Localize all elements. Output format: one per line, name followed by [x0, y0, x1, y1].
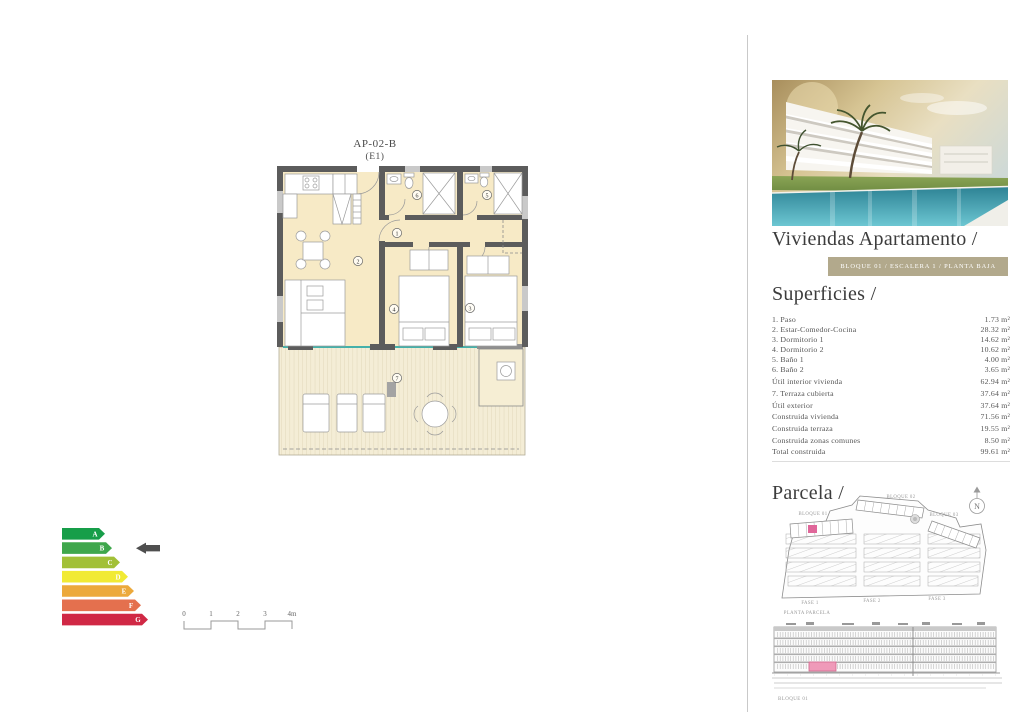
- row-value: 3.65 m²: [985, 365, 1010, 375]
- row-value: 37.64 m²: [981, 401, 1011, 411]
- svg-text:2: 2: [236, 610, 240, 618]
- energy-rating-chart: A B C D E F G: [62, 528, 166, 630]
- svg-text:A: A: [92, 530, 97, 538]
- unit-marker: [808, 525, 817, 533]
- superficies-row: 3. Dormitorio 114.62 m²: [772, 335, 1010, 345]
- superficies-row: Útil interior vivienda62.94 m²: [772, 377, 1010, 387]
- site-label-bloque02: BLOQUE 02: [886, 495, 915, 500]
- svg-text:F: F: [129, 602, 133, 610]
- row-label: 7. Terraza cubierta: [772, 389, 834, 399]
- plan-title: AP-02-B: [300, 138, 450, 152]
- row-value: 19.55 m²: [981, 424, 1011, 434]
- parcela-heading: Parcela /: [772, 482, 844, 505]
- row-label: 2. Estar-Comedor-Cocina: [772, 325, 856, 335]
- row-value: 71.56 m²: [981, 412, 1011, 422]
- plan-title-block: AP-02-B (E1): [300, 138, 450, 164]
- svg-text:G: G: [135, 616, 141, 624]
- superficies-row: 1. Paso1.73 m²: [772, 315, 1010, 325]
- svg-text:3: 3: [263, 610, 267, 618]
- superficies-row: 7. Terraza cubierta37.64 m²: [772, 389, 1010, 399]
- brochure-page: AP-02-B (E1): [0, 0, 1024, 724]
- row-label: 6. Baño 2: [772, 365, 804, 375]
- svg-text:B: B: [100, 545, 105, 553]
- rating-arrow-a: [62, 528, 105, 540]
- superficies-row: 6. Baño 23.65 m²: [772, 365, 1010, 375]
- room-label-7: 7: [396, 376, 399, 382]
- row-label: 5. Baño 1: [772, 355, 804, 365]
- superficies-row: Útil exterior37.64 m²: [772, 401, 1010, 411]
- svg-text:0: 0: [182, 610, 186, 618]
- room-label-3: 3: [469, 306, 472, 312]
- svg-text:E: E: [122, 588, 127, 596]
- superficies-row: 2. Estar-Comedor-Cocina28.32 m²: [772, 325, 1010, 335]
- panel-divider: [747, 35, 748, 712]
- site-label-fase3: FASE 3: [928, 597, 946, 602]
- row-value: 99.61 m²: [981, 447, 1011, 457]
- location-badge: BLOQUE 01 / ESCALERA 1 / PLANTA BAJA: [828, 257, 1008, 276]
- row-label: Útil interior vivienda: [772, 377, 842, 387]
- elevation-unit-highlight: [809, 662, 836, 671]
- planter: [387, 382, 396, 397]
- row-value: 62.94 m²: [981, 377, 1011, 387]
- base-lines: [772, 673, 1002, 688]
- scale-bar-line: [184, 621, 292, 629]
- row-label: Construida terraza: [772, 424, 833, 434]
- row-label: 3. Dormitorio 1: [772, 335, 824, 345]
- row-label: Total construida: [772, 447, 826, 457]
- rating-arrow-b: [62, 542, 112, 554]
- superficies-row: 4. Dormitorio 210.62 m²: [772, 345, 1010, 355]
- svg-text:D: D: [115, 573, 120, 581]
- svg-text:N: N: [974, 502, 980, 511]
- superficies-row: Construida terraza19.55 m²: [772, 424, 1010, 434]
- svg-text:4m: 4m: [288, 610, 298, 618]
- scale-bar: 0 1 2 3 4m: [180, 608, 298, 636]
- row-label: 1. Paso: [772, 315, 796, 325]
- row-value: 14.62 m²: [981, 335, 1011, 345]
- row-value: 10.62 m²: [981, 345, 1011, 355]
- site-label-planta-parcela: PLANTA PARCELA: [784, 611, 831, 616]
- svg-text:C: C: [107, 559, 112, 567]
- floor-plan: 1 2 3 4 5 6 7: [277, 166, 528, 458]
- room-label-6: 6: [416, 193, 419, 199]
- row-label: Construida vivienda: [772, 412, 839, 422]
- plan-subtitle: (E1): [300, 152, 450, 164]
- building-photo: [772, 80, 1008, 226]
- superficies-row: Total construida99.61 m²: [772, 447, 1010, 457]
- row-value: 1.73 m²: [985, 315, 1010, 325]
- row-label: Construida zonas comunes: [772, 436, 860, 446]
- roof-band: [774, 627, 996, 631]
- site-label-fase2: FASE 2: [863, 599, 881, 604]
- room-label-5: 5: [486, 193, 489, 199]
- site-label-bloque01: BLOQUE 01: [798, 512, 827, 517]
- row-label: 4. Dormitorio 2: [772, 345, 824, 355]
- elevation-label: BLOQUE 01: [778, 697, 808, 702]
- room-label-2: 2: [357, 259, 360, 265]
- rating-arrows: [62, 528, 148, 625]
- row-value: 37.64 m²: [981, 389, 1011, 399]
- row-label: Útil exterior: [772, 401, 813, 411]
- site-plan: N: [772, 486, 1008, 616]
- elevation-drawing: BLOQUE 01: [772, 620, 1008, 720]
- superficies-heading: Superficies /: [772, 283, 876, 306]
- row-value: 4.00 m²: [985, 355, 1010, 365]
- row-value: 28.32 m²: [981, 325, 1011, 335]
- far-building: [940, 146, 992, 174]
- site-label-bloque03: BLOQUE 03: [929, 513, 958, 518]
- superficies-table: 1. Paso1.73 m² 2. Estar-Comedor-Cocina28…: [772, 315, 1010, 462]
- row-value: 8.50 m²: [985, 436, 1010, 446]
- site-label-fase1: FASE 1: [801, 601, 819, 606]
- scale-labels: 0 1 2 3 4m: [182, 610, 297, 618]
- panel-title: Viviendas Apartamento /: [772, 228, 978, 251]
- superficies-row: 5. Baño 14.00 m²: [772, 355, 1010, 365]
- room-label-4: 4: [393, 307, 396, 313]
- room-label-1: 1: [396, 231, 399, 237]
- north-compass: N: [970, 487, 985, 514]
- current-rating-indicator: [136, 543, 160, 554]
- site-fountain-center: [913, 517, 917, 521]
- roof-equipment: [786, 622, 985, 625]
- svg-text:1: 1: [209, 610, 213, 618]
- superficies-row: Construida vivienda71.56 m²: [772, 412, 1010, 422]
- superficies-row: Construida zonas comunes8.50 m²: [772, 436, 1010, 446]
